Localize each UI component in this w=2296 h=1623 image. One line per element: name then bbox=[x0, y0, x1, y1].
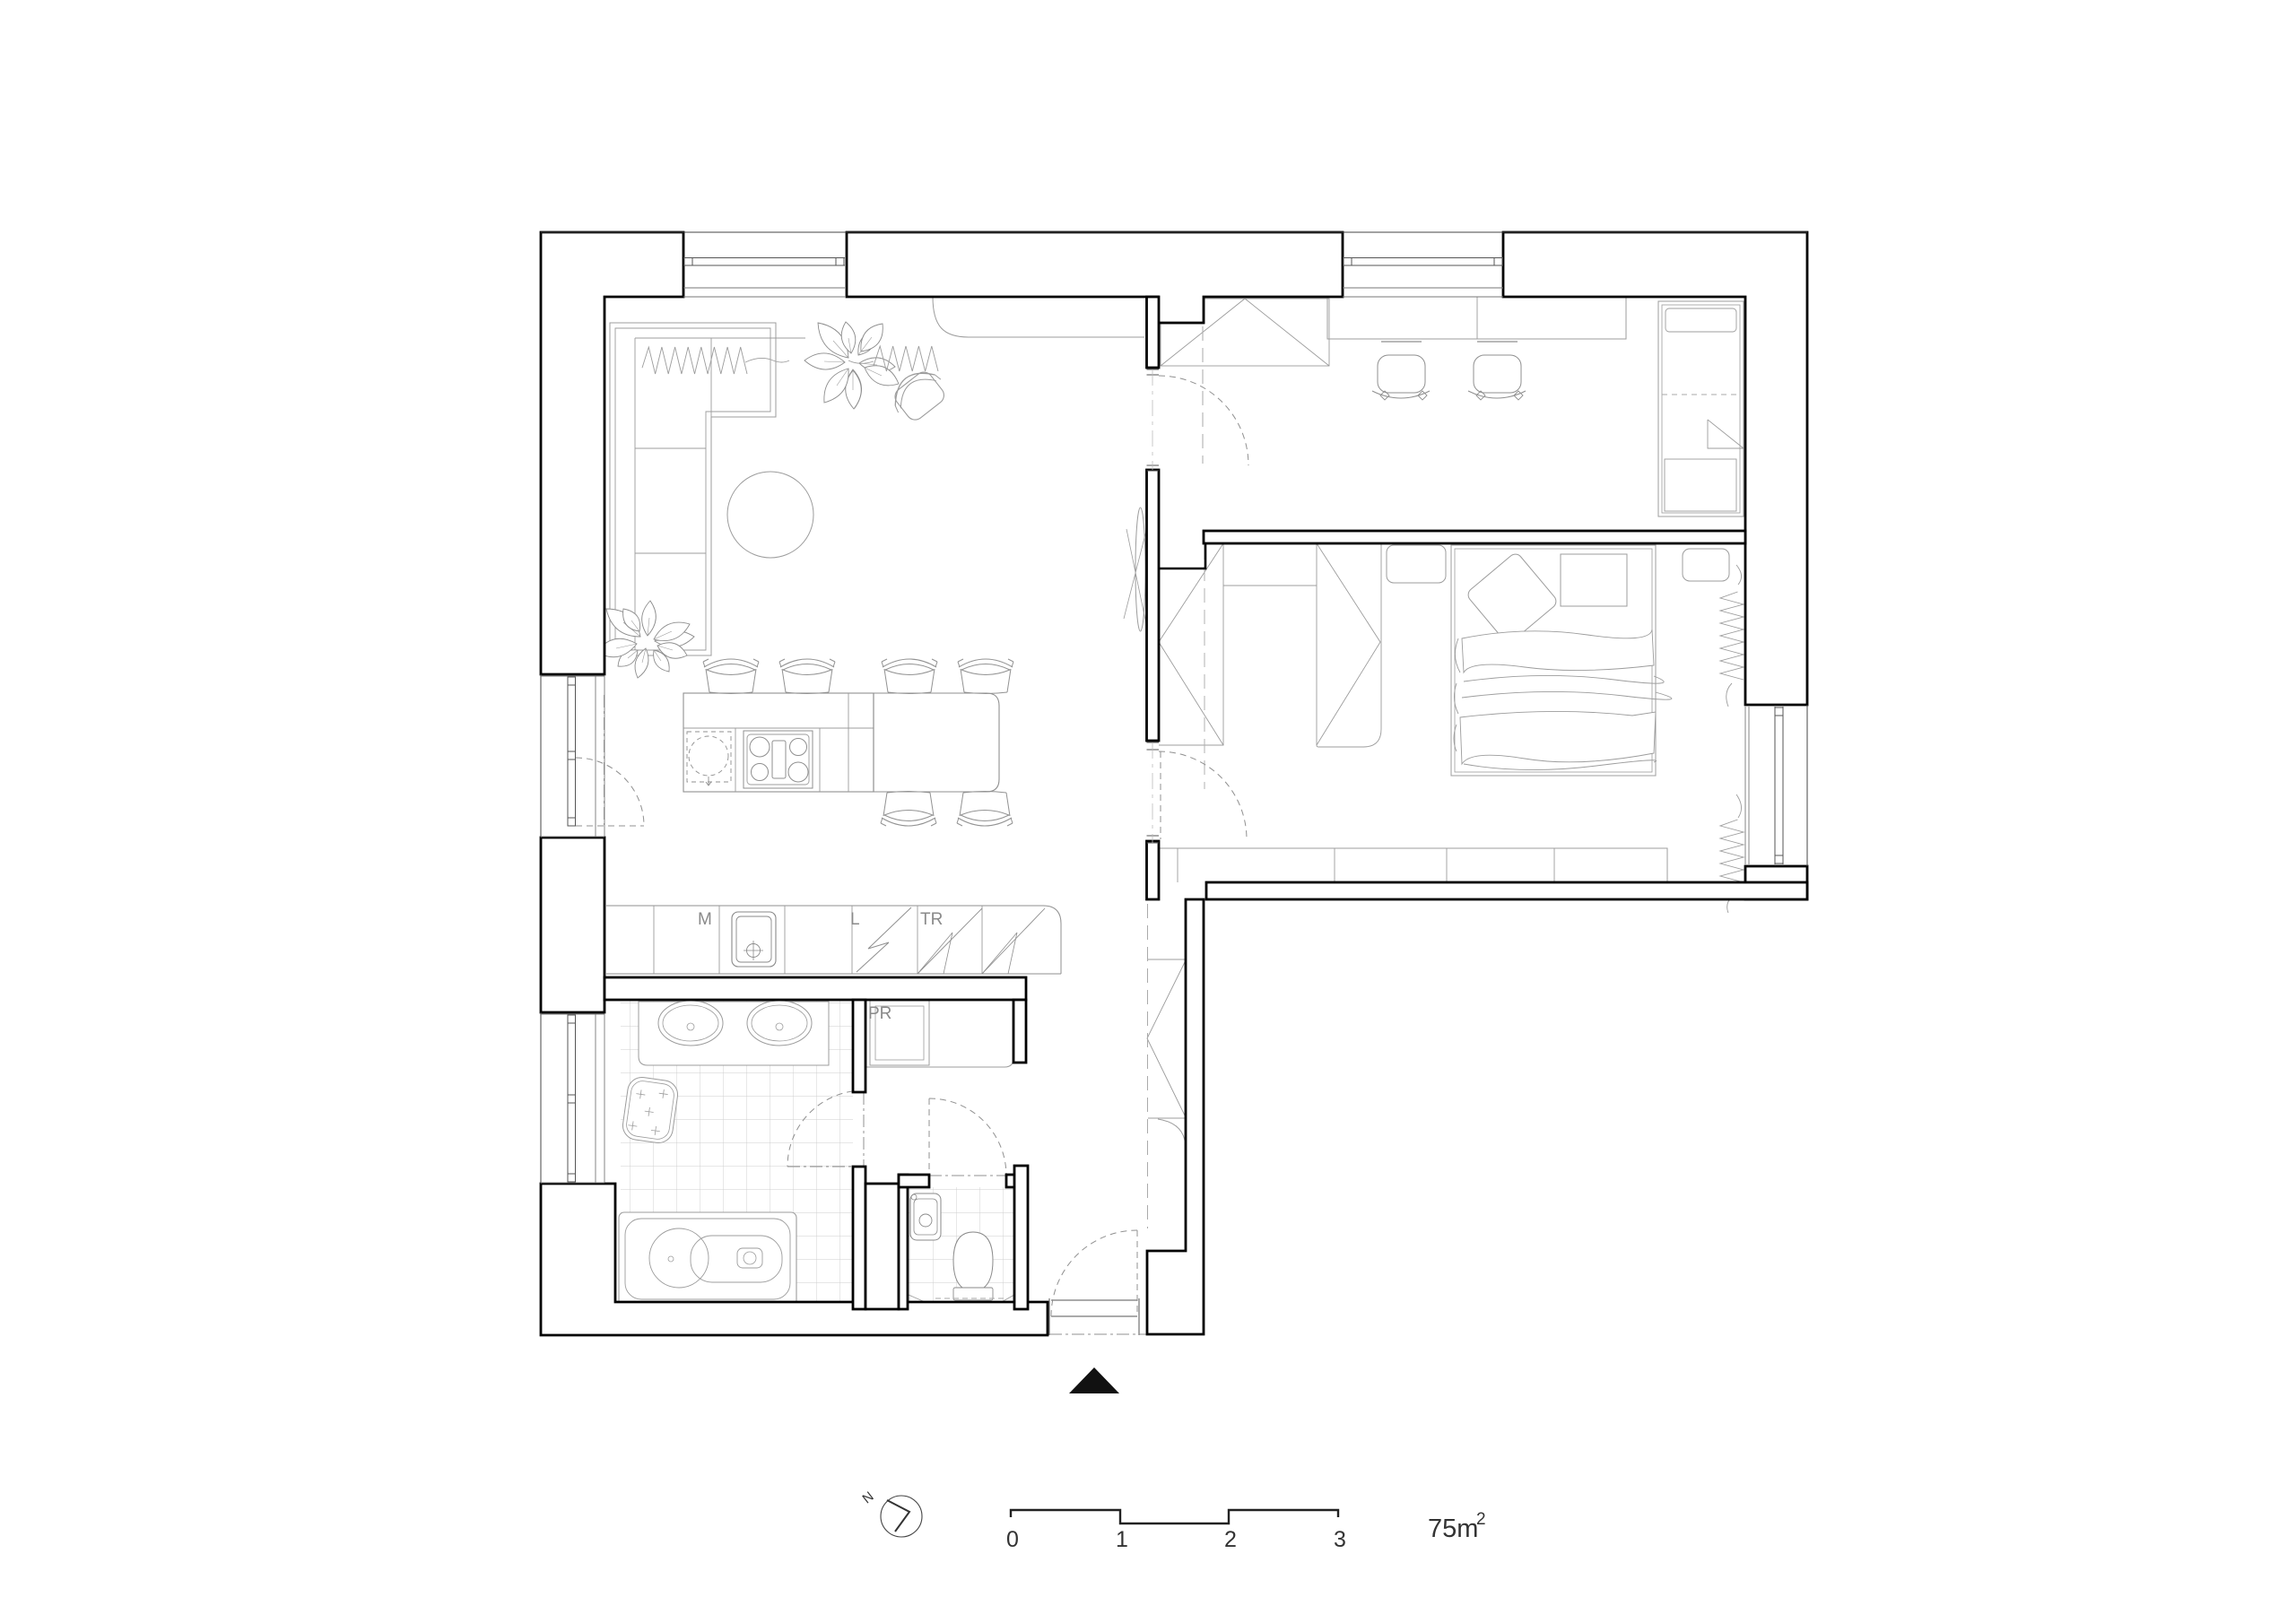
svg-text:1: 1 bbox=[1116, 1527, 1128, 1552]
svg-text:L: L bbox=[850, 910, 860, 929]
svg-text:M: M bbox=[698, 910, 712, 929]
svg-text:2: 2 bbox=[1476, 1510, 1486, 1529]
svg-text:0: 0 bbox=[1006, 1527, 1019, 1552]
svg-text:TR: TR bbox=[920, 910, 943, 929]
svg-text:3: 3 bbox=[1334, 1527, 1346, 1552]
svg-text:75m: 75m bbox=[1428, 1515, 1478, 1543]
svg-text:PR: PR bbox=[868, 1004, 891, 1023]
svg-text:2: 2 bbox=[1224, 1527, 1237, 1552]
